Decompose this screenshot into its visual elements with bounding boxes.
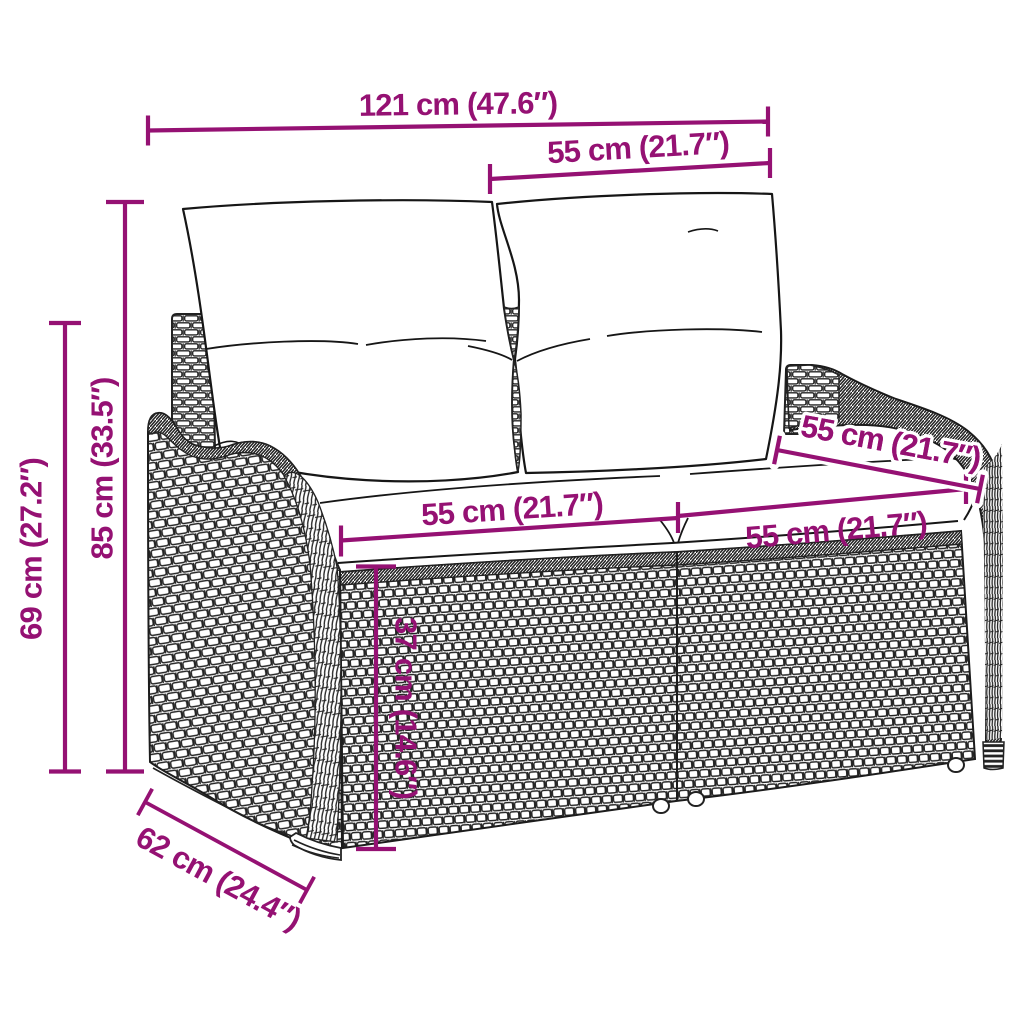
svg-text:69 cm (27.2″): 69 cm (27.2″) <box>14 458 49 640</box>
svg-text:85 cm (33.5″): 85 cm (33.5″) <box>85 378 120 560</box>
svg-text:121 cm (47.6″): 121 cm (47.6″) <box>359 85 558 123</box>
svg-text:37 cm (14.6″): 37 cm (14.6″) <box>389 617 424 799</box>
